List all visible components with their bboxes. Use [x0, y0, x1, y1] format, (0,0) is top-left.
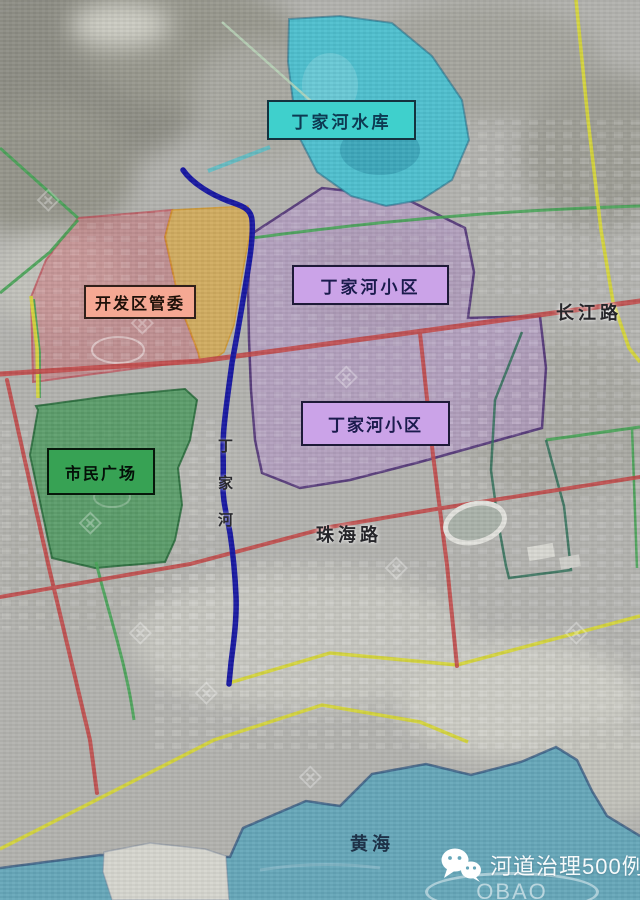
- river-name-char-3: 河: [218, 502, 233, 539]
- yellow-sea-label: 黄海: [350, 830, 394, 856]
- dev-zone-label: 开发区管委: [84, 285, 196, 319]
- estate-lower-label: 丁家河小区: [301, 401, 450, 446]
- river-name-char-1: 丁: [218, 428, 233, 465]
- wechat-icon: [440, 846, 482, 884]
- peninsula-land: [103, 843, 229, 900]
- estate-upper-label: 丁家河小区: [292, 265, 449, 305]
- channel-watermark: 河道治理500例: [440, 846, 640, 884]
- plaza-label: 市民广场: [47, 448, 155, 495]
- river-name-label: 丁 家 河: [218, 428, 233, 539]
- changjiang-road-label: 长江路: [556, 299, 622, 325]
- reservoir-label: 丁家河水库: [267, 100, 416, 140]
- satellite-map-image: 丁家河水库 开发区管委 丁家河小区 丁家河小区 市民广场 长江路 珠海路 黄海 …: [0, 0, 640, 900]
- river-name-char-2: 家: [218, 465, 233, 502]
- zhuhai-road-label: 珠海路: [316, 521, 382, 547]
- watermark-title: 河道治理500例: [490, 849, 640, 881]
